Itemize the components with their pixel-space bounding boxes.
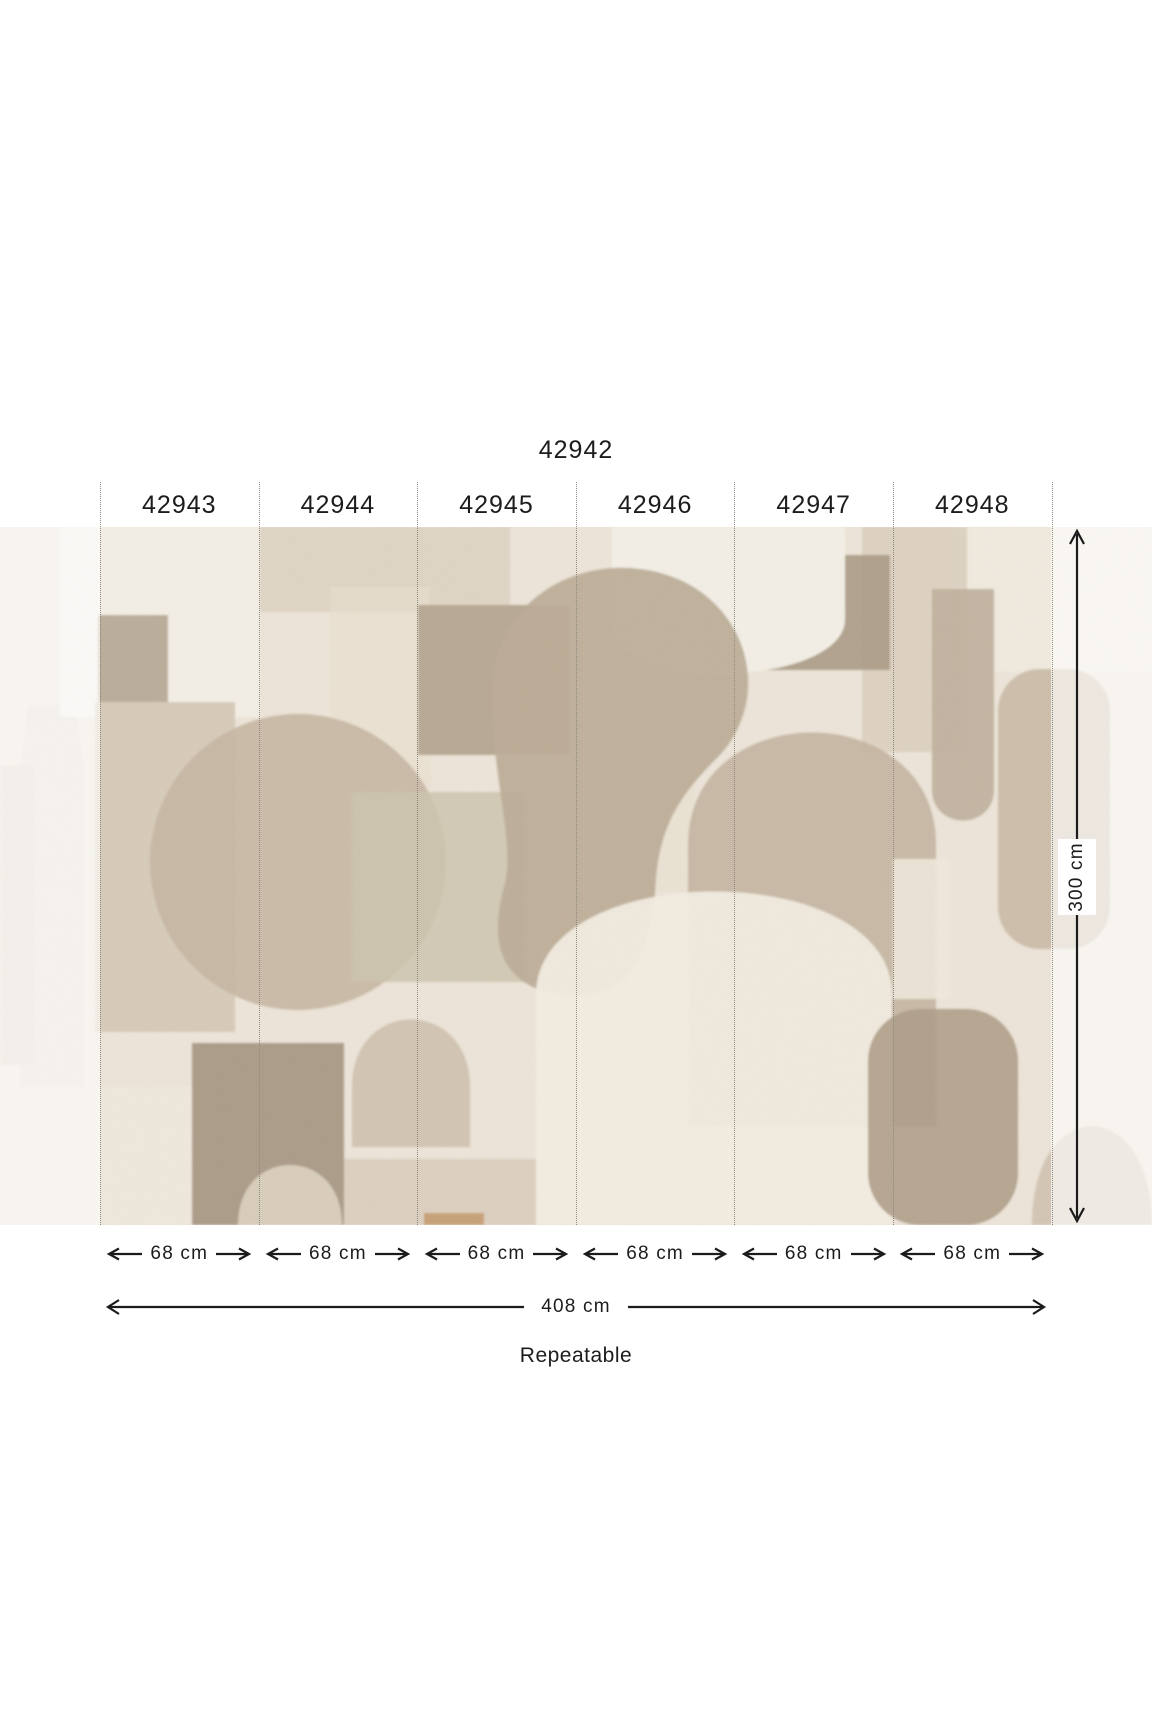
arrow-right-icon xyxy=(851,1247,887,1261)
arrow-right-icon xyxy=(533,1247,569,1261)
panel-width-value: 68 cm xyxy=(309,1243,367,1265)
panel-code-1: 42943 xyxy=(100,491,259,521)
total-width-value: 408 cm xyxy=(541,1296,611,1318)
arrow-left-icon xyxy=(424,1247,460,1261)
height-value: 300 cm xyxy=(1066,842,1088,912)
arrow-left-icon xyxy=(741,1247,777,1261)
panel-seam-line-1 xyxy=(100,482,101,1225)
arrow-right-icon xyxy=(692,1247,728,1261)
panel-seam-line-6 xyxy=(893,482,894,1225)
left-bleed-fade xyxy=(0,527,100,1225)
height-dimension-label: 300 cm xyxy=(1058,839,1096,915)
arrow-right-icon xyxy=(375,1247,411,1261)
panel-width-dim-6: 68 cm xyxy=(893,1240,1052,1268)
product-code: 42942 xyxy=(0,436,1152,465)
panel-seam-line-5 xyxy=(734,482,735,1225)
arrow-left-icon xyxy=(265,1247,301,1261)
panel-width-value: 68 cm xyxy=(150,1243,208,1265)
panel-width-value: 68 cm xyxy=(943,1243,1001,1265)
panel-code-3: 42945 xyxy=(417,491,576,521)
panel-code-4: 42946 xyxy=(576,491,735,521)
panel-seam-line-4 xyxy=(576,482,577,1225)
panel-width-dim-1: 68 cm xyxy=(100,1240,259,1268)
total-width-dimension: 408 cm xyxy=(100,1293,1052,1321)
arrow-right-icon xyxy=(1009,1247,1045,1261)
panel-width-dim-3: 68 cm xyxy=(417,1240,576,1268)
panel-width-value: 68 cm xyxy=(468,1243,526,1265)
panel-width-dim-4: 68 cm xyxy=(576,1240,735,1268)
wallpaper-panel-diagram: 42942 42943 42944 42945 42946 42947 4294… xyxy=(0,0,1152,1728)
panel-code-2: 42944 xyxy=(259,491,418,521)
arrow-right-icon xyxy=(216,1247,252,1261)
panel-code-5: 42947 xyxy=(734,491,893,521)
arrow-left-icon xyxy=(582,1247,618,1261)
panel-seam-line-3 xyxy=(417,482,418,1225)
panel-width-value: 68 cm xyxy=(785,1243,843,1265)
panel-width-dim-5: 68 cm xyxy=(734,1240,893,1268)
panel-code-6: 42948 xyxy=(893,491,1052,521)
panel-width-value: 68 cm xyxy=(626,1243,684,1265)
panel-seam-line-7 xyxy=(1052,482,1053,1225)
arrow-left-icon xyxy=(106,1247,142,1261)
arrow-left-icon xyxy=(899,1247,935,1261)
repeatable-note: Repeatable xyxy=(100,1344,1052,1368)
panel-width-dim-2: 68 cm xyxy=(259,1240,418,1268)
panel-seam-line-2 xyxy=(259,482,260,1225)
